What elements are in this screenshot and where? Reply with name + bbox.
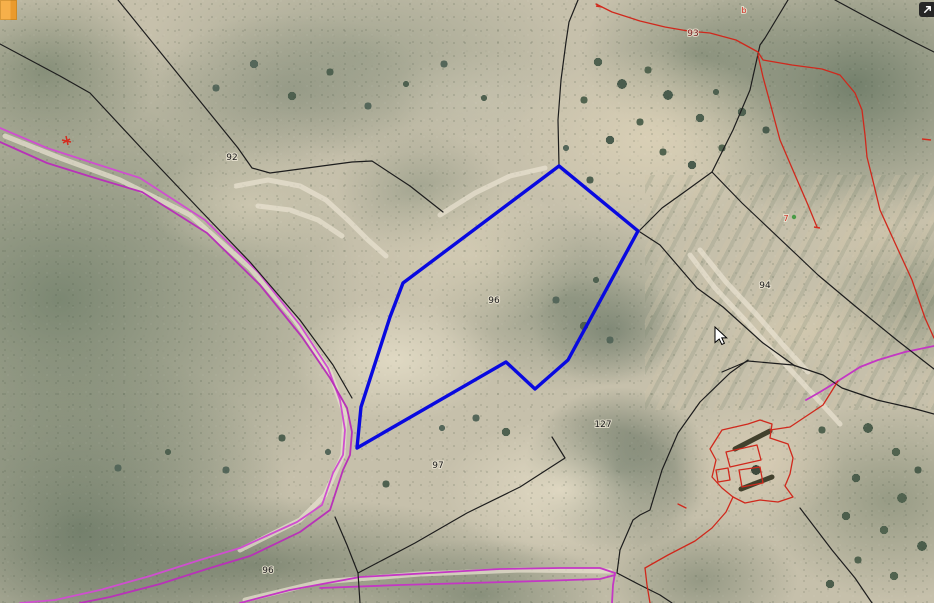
parcel-label-127: 127 bbox=[594, 420, 611, 430]
red-survey-mark bbox=[62, 136, 71, 145]
red-line-loop-right bbox=[758, 52, 934, 338]
parcel-line-topcenter bbox=[558, 0, 578, 166]
parcel-label-97: 97 bbox=[432, 461, 443, 471]
parcel-label-92: 92 bbox=[226, 153, 237, 163]
parcel-line-topleft-b bbox=[0, 44, 352, 398]
parcel-label-94: 94 bbox=[759, 281, 771, 291]
parcel-line-bottom-ns bbox=[335, 517, 360, 603]
cadastral-overlay: 929694971279693b7 bbox=[0, 0, 934, 603]
fullscreen-button[interactable] bbox=[919, 2, 934, 17]
red-line-to-junction bbox=[645, 497, 733, 568]
trail-road-nw bbox=[5, 136, 345, 550]
mouse-cursor bbox=[715, 327, 727, 345]
selected-parcel-outline[interactable] bbox=[357, 166, 638, 448]
parcel-label-96-south: 96 bbox=[262, 566, 274, 576]
strip94-lower bbox=[640, 232, 795, 366]
expand-ne-arrow-icon bbox=[922, 4, 933, 15]
road-south-stub bbox=[612, 573, 615, 603]
red-tick-top bbox=[596, 6, 602, 7]
building-inner-1 bbox=[726, 445, 761, 467]
trail-92-inner bbox=[258, 206, 342, 236]
boundary-label-b: b bbox=[741, 6, 746, 15]
building-roof-bar-2 bbox=[741, 477, 772, 489]
red-dash-right-edge bbox=[922, 139, 931, 140]
road-nw-outer bbox=[0, 128, 345, 603]
green-dot-mark bbox=[792, 215, 796, 219]
red-mark-small bbox=[678, 504, 686, 508]
boundary-label-93: 93 bbox=[687, 29, 698, 39]
boundary-label-7: 7 bbox=[783, 214, 788, 223]
parcel-line-bottom-se bbox=[617, 573, 672, 603]
red-dash-mid-right bbox=[814, 227, 820, 228]
trail-center bbox=[440, 168, 545, 215]
building-inner-3 bbox=[716, 468, 730, 482]
parcel-line-br-corner bbox=[800, 508, 872, 603]
strip94-upper bbox=[712, 172, 934, 369]
parcel-arc-127 bbox=[617, 360, 748, 573]
parcel-label-96: 96 bbox=[488, 296, 500, 306]
red-line-top bbox=[596, 4, 758, 52]
parcel-line-diagonal-sw bbox=[358, 437, 565, 573]
red-line-loop-left bbox=[758, 55, 817, 227]
aerial-map-viewport[interactable]: 929694971279693b7 bbox=[0, 0, 934, 603]
red-spur-ne bbox=[770, 381, 838, 430]
red-line-junction-s bbox=[645, 568, 650, 603]
map-marker-square bbox=[0, 0, 17, 20]
trail-94-b bbox=[700, 250, 808, 372]
